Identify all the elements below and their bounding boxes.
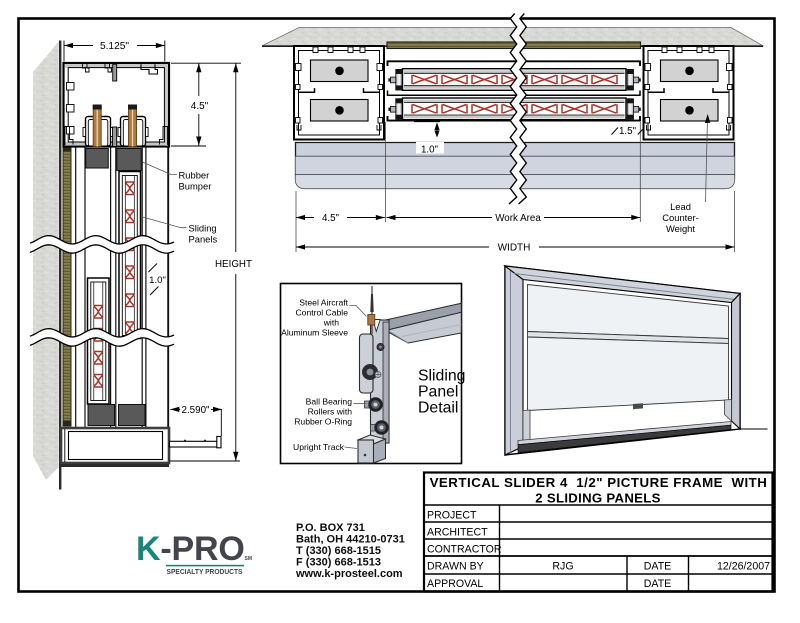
svg-text:P.O. BOX 731: P.O. BOX 731 [296, 522, 365, 534]
svg-text:Control Cable: Control Cable [295, 308, 348, 318]
svg-text:2 SLIDING PANELS: 2 SLIDING PANELS [535, 491, 660, 506]
svg-text:Aluminum Sleeve: Aluminum Sleeve [281, 328, 348, 338]
svg-text:4.5": 4.5" [322, 213, 340, 224]
svg-text:Rubber: Rubber [179, 170, 210, 181]
svg-text:SPECIALTY PRODUCTS: SPECIALTY PRODUCTS [167, 567, 243, 576]
svg-text:Rubber O-Ring: Rubber O-Ring [294, 417, 352, 427]
svg-text:VERTICAL SLIDER 4 1/2" PICTUR: VERTICAL SLIDER 4 1/2" PICTURE FRAME WIT… [430, 475, 768, 490]
svg-text:2.590": 2.590" [182, 405, 211, 416]
svg-text:Rollers with: Rollers with [308, 407, 353, 417]
svg-text:Upright Track: Upright Track [293, 442, 345, 452]
svg-text:Detail: Detail [418, 400, 458, 417]
svg-text:1.0": 1.0" [421, 145, 439, 156]
svg-text:K-PRO: K-PRO [136, 530, 245, 568]
svg-text:CONTRACTOR: CONTRACTOR [427, 544, 502, 556]
svg-text:www.k-prosteel.com: www.k-prosteel.com [295, 568, 403, 580]
svg-text:Steel Aircraft: Steel Aircraft [299, 298, 348, 308]
svg-text:12/26/2007: 12/26/2007 [717, 561, 770, 573]
svg-text:Panels: Panels [189, 234, 218, 245]
svg-text:1.5": 1.5" [619, 126, 637, 137]
svg-text:RJG: RJG [552, 561, 573, 573]
svg-text:WIDTH: WIDTH [498, 242, 531, 253]
svg-text:T (330) 668-1515: T (330) 668-1515 [296, 545, 381, 557]
svg-text:Bumper: Bumper [179, 181, 212, 192]
svg-text:SM: SM [245, 556, 253, 562]
svg-text:Bath, OH 44210-0731: Bath, OH 44210-0731 [296, 534, 405, 546]
svg-text:DRAWN BY: DRAWN BY [427, 561, 484, 573]
svg-text:APPROVAL: APPROVAL [427, 578, 483, 590]
svg-text:Counter-: Counter- [662, 212, 698, 223]
svg-text:HEIGHT: HEIGHT [215, 259, 252, 270]
svg-text:4.5": 4.5" [191, 101, 209, 112]
svg-text:ARCHITECT: ARCHITECT [427, 527, 488, 539]
svg-text:Panel: Panel [418, 384, 458, 401]
svg-text:Ball Bearing: Ball Bearing [306, 397, 353, 407]
svg-text:DATE: DATE [644, 578, 671, 590]
svg-text:Sliding: Sliding [418, 368, 465, 385]
svg-text:DATE: DATE [644, 561, 671, 573]
svg-text:Sliding: Sliding [189, 223, 217, 234]
svg-text:5.125": 5.125" [100, 41, 129, 52]
svg-text:Work Area: Work Area [495, 213, 541, 224]
svg-text:with: with [323, 318, 340, 328]
svg-text:Lead: Lead [670, 201, 691, 212]
svg-text:1.0": 1.0" [149, 275, 166, 286]
svg-text:Weight: Weight [666, 223, 695, 234]
svg-text:F (330) 668-1513: F (330) 668-1513 [296, 557, 381, 569]
svg-text:PROJECT: PROJECT [427, 510, 477, 522]
